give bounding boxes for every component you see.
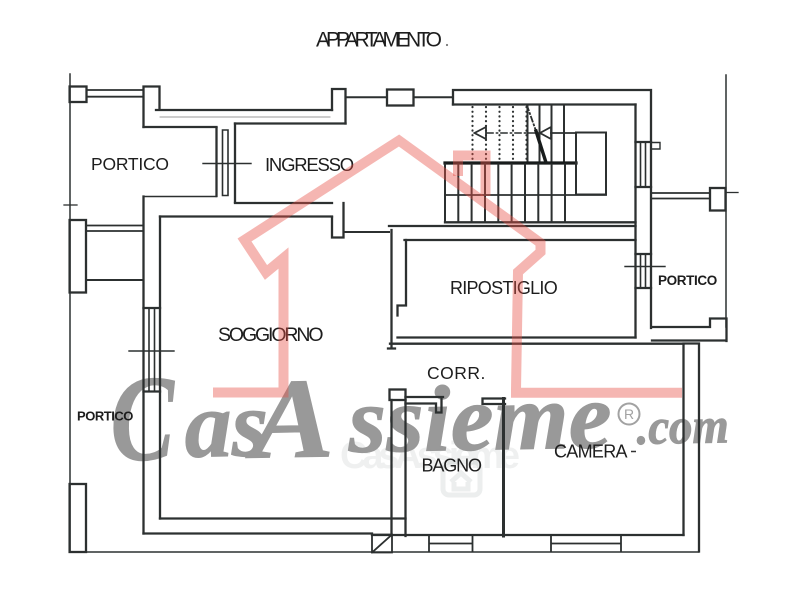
svg-text:CORR.: CORR.	[427, 363, 486, 383]
svg-text:R: R	[624, 406, 634, 422]
svg-text:RIPOSTIGLIO: RIPOSTIGLIO	[450, 278, 558, 298]
svg-text:PORTICO: PORTICO	[91, 154, 170, 174]
svg-text:CAMERA: CAMERA	[554, 442, 628, 462]
svg-text:SOGGIORNO: SOGGIORNO	[218, 324, 324, 346]
svg-text:APPARTAMENTO: APPARTAMENTO	[316, 29, 442, 52]
svg-text:PORTICO: PORTICO	[77, 409, 134, 424]
svg-text:PORTICO: PORTICO	[658, 273, 718, 288]
svg-text:A: A	[244, 354, 335, 483]
svg-text:BAGNO: BAGNO	[422, 456, 483, 476]
